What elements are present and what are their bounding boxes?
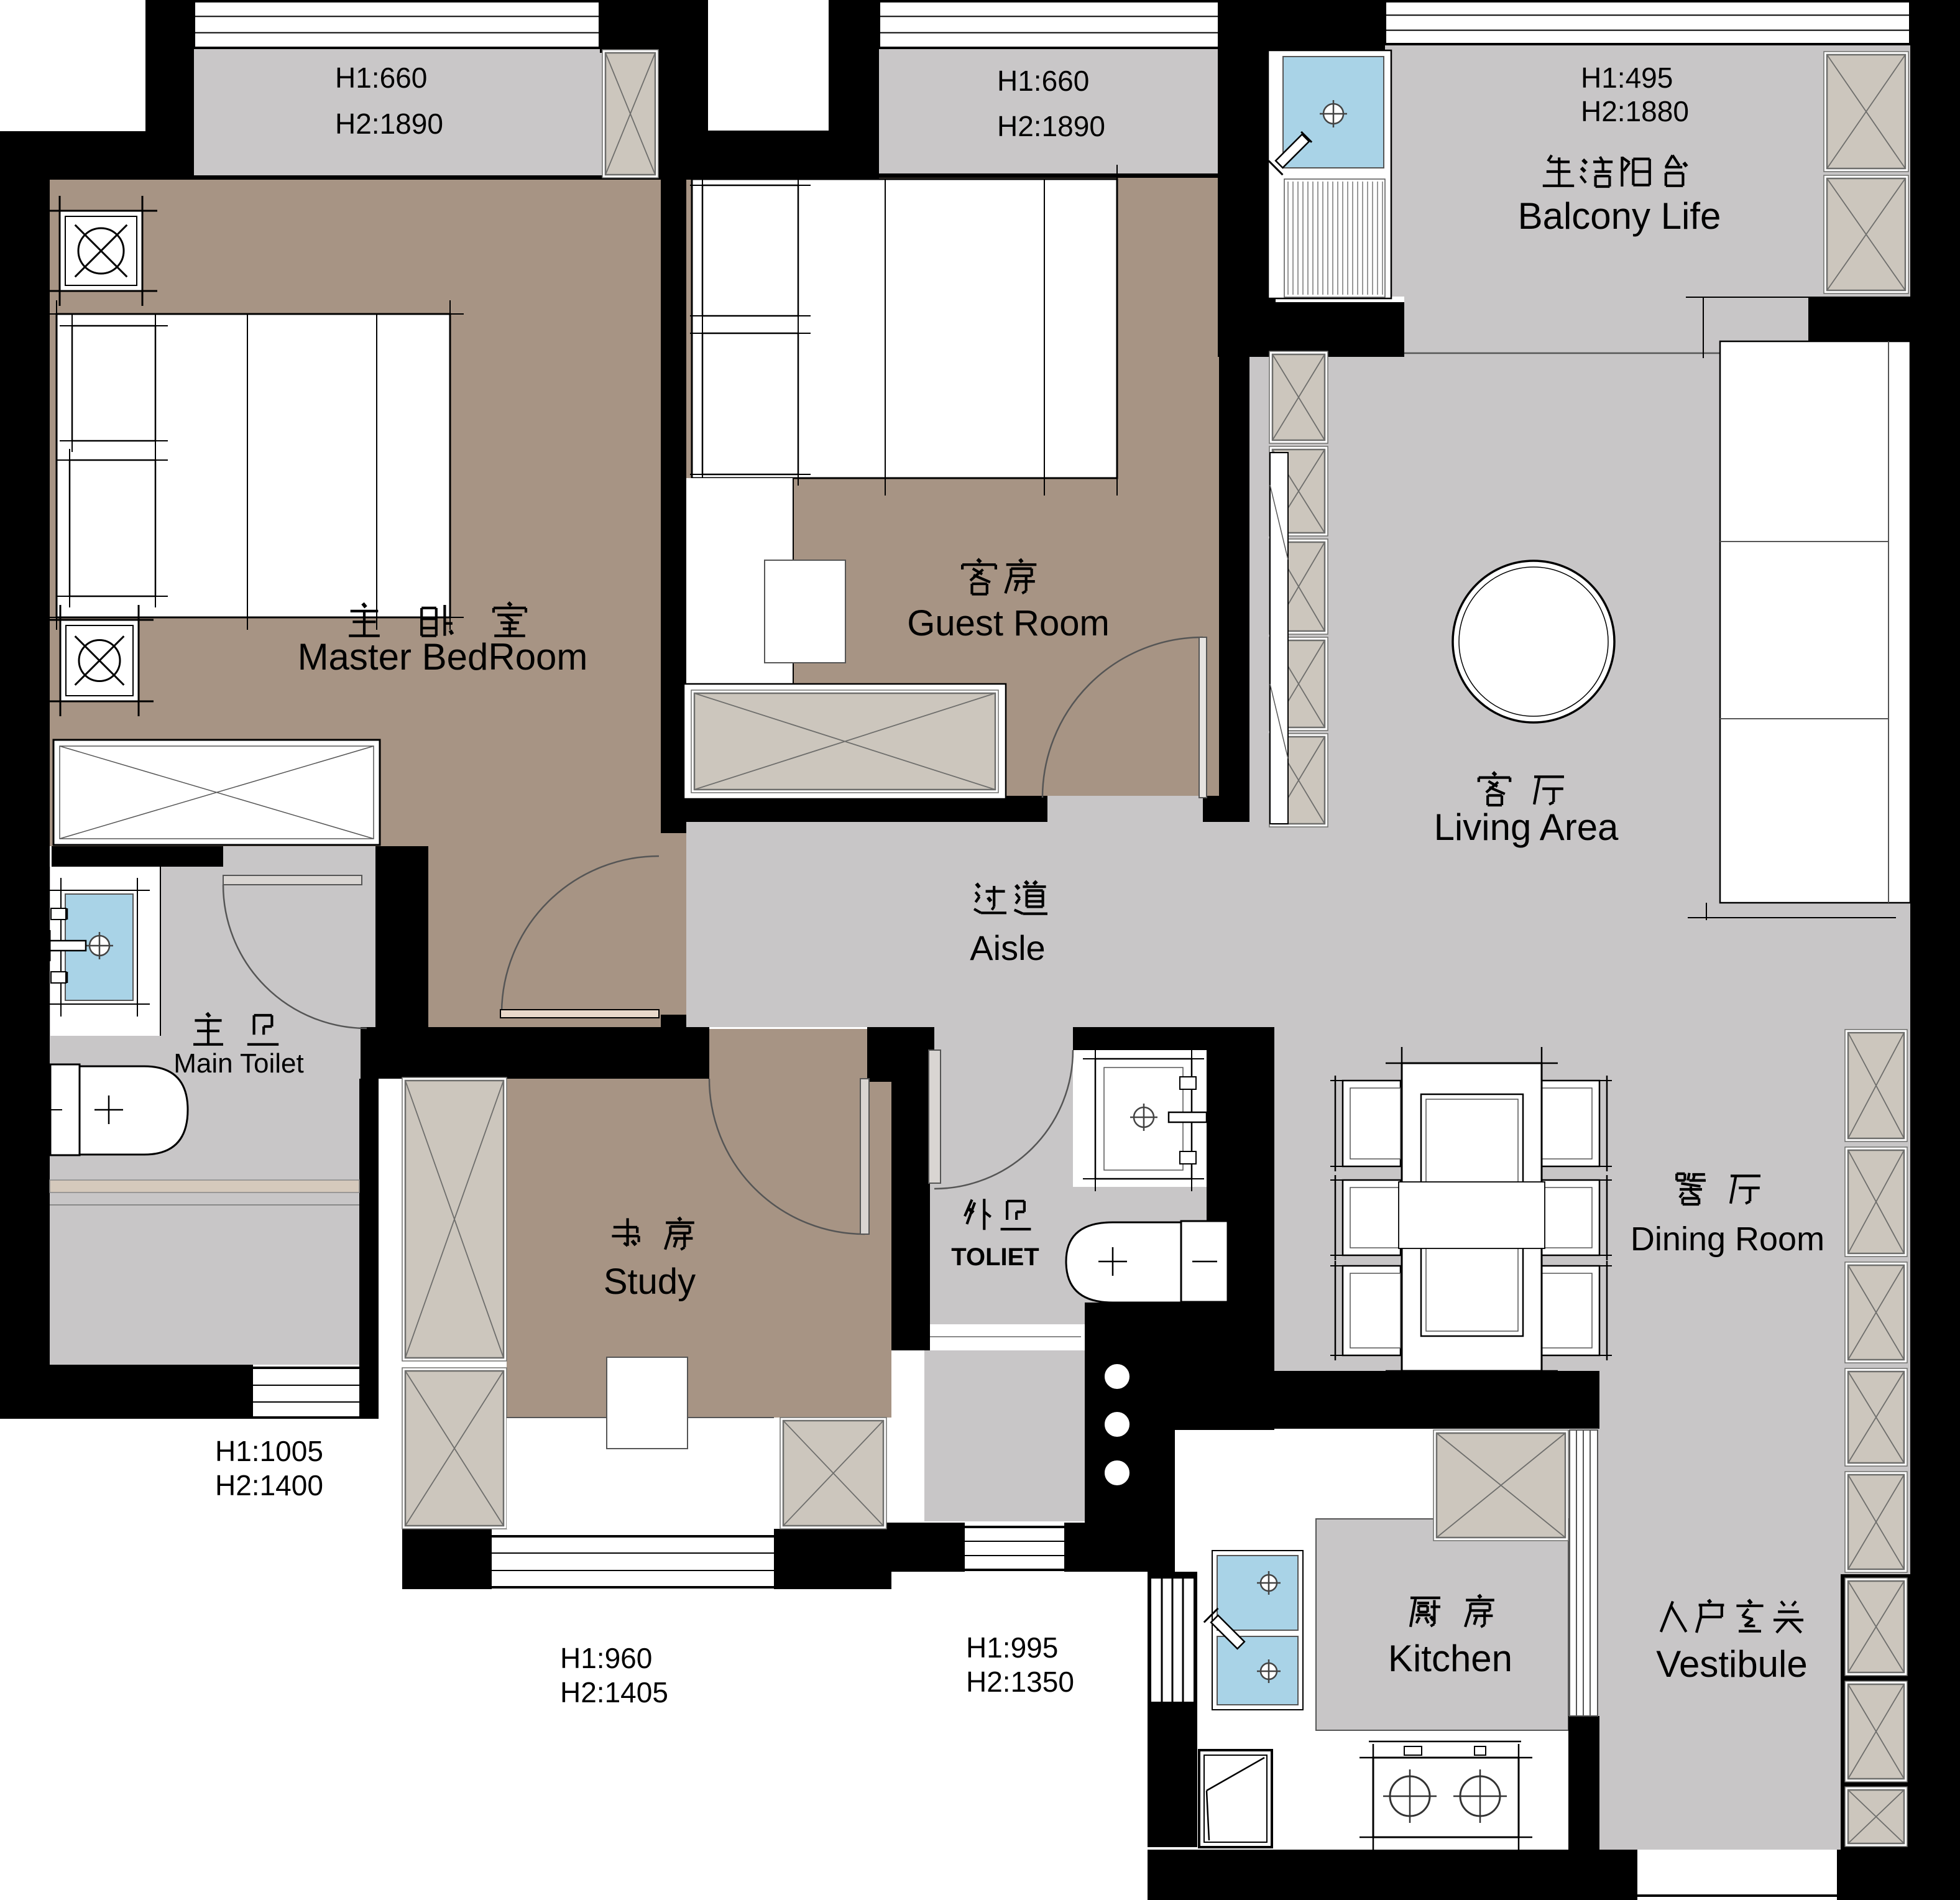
svg-text:Aisle: Aisle [970, 928, 1045, 967]
svg-text:Study: Study [604, 1261, 696, 1302]
svg-text:Main Toilet: Main Toilet [173, 1048, 304, 1079]
svg-text:Dining Room: Dining Room [1631, 1220, 1824, 1258]
svg-text:H2:1350: H2:1350 [966, 1666, 1074, 1698]
svg-text:H1:660: H1:660 [335, 62, 427, 94]
svg-text:Master BedRoom: Master BedRoom [298, 636, 588, 678]
svg-text:Kitchen: Kitchen [1388, 1638, 1512, 1679]
svg-text:Vestibule: Vestibule [1656, 1643, 1808, 1685]
svg-text:H2:1890: H2:1890 [997, 110, 1105, 142]
svg-text:H2:1405: H2:1405 [560, 1676, 668, 1709]
svg-text:TOLIET: TOLIET [951, 1243, 1039, 1271]
svg-text:Balcony Life: Balcony Life [1518, 195, 1721, 237]
svg-text:H1:995: H1:995 [966, 1631, 1058, 1664]
svg-text:H2:1880: H2:1880 [1581, 95, 1689, 127]
svg-text:H1:1005: H1:1005 [215, 1435, 323, 1467]
svg-text:H1:960: H1:960 [560, 1642, 652, 1674]
svg-text:H1:495: H1:495 [1581, 62, 1673, 94]
svg-text:Guest Room: Guest Room [907, 603, 1110, 643]
svg-text:H2:1400: H2:1400 [215, 1469, 323, 1501]
svg-text:Living Area: Living Area [1434, 806, 1619, 848]
svg-text:H2:1890: H2:1890 [335, 108, 443, 140]
svg-text:H1:660: H1:660 [997, 65, 1089, 97]
